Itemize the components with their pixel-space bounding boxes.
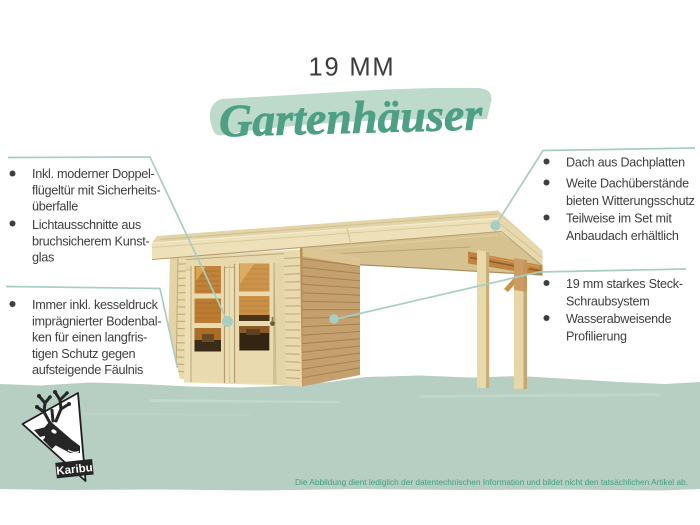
svg-text:aufsteigende Fäulnis: aufsteigende Fäulnis bbox=[32, 363, 143, 377]
svg-text:bieten Witterungsschutz: bieten Witterungsschutz bbox=[566, 194, 695, 208]
svg-text:Immer inkl. kesseldruck: Immer inkl. kesseldruck bbox=[32, 298, 159, 312]
svg-text:bruchsicherem Kunst-: bruchsicherem Kunst- bbox=[32, 234, 149, 248]
svg-text:19 MM: 19 MM bbox=[309, 54, 396, 82]
svg-text:Weite Dachüberstände: Weite Dachüberstände bbox=[566, 177, 689, 191]
svg-text:Gartenhäuser: Gartenhäuser bbox=[218, 89, 484, 147]
svg-text:Die Abbildung dient lediglich: Die Abbildung dient lediglich der datent… bbox=[295, 477, 688, 487]
svg-text:ken für einen langfris-: ken für einen langfris- bbox=[32, 331, 147, 345]
svg-text:19 mm starkes Steck-: 19 mm starkes Steck- bbox=[566, 277, 683, 291]
svg-text:Teilweise im Set mit: Teilweise im Set mit bbox=[566, 212, 672, 226]
svg-text:tigen Schutz gegen: tigen Schutz gegen bbox=[32, 347, 135, 361]
svg-text:Lichtausschnitte aus: Lichtausschnitte aus bbox=[32, 218, 141, 232]
svg-text:Schraubsystem: Schraubsystem bbox=[566, 295, 650, 309]
svg-text:Profilierung: Profilierung bbox=[566, 330, 627, 344]
svg-text:glas: glas bbox=[32, 251, 54, 265]
svg-text:imprägnierter Bodenbal-: imprägnierter Bodenbal- bbox=[32, 314, 161, 328]
svg-text:Wasserabweisende: Wasserabweisende bbox=[566, 312, 672, 326]
svg-text:überfalle: überfalle bbox=[32, 200, 78, 214]
svg-text:Anbaudach erhältlich: Anbaudach erhältlich bbox=[566, 229, 679, 243]
svg-text:flügeltür mit Sicherheits-: flügeltür mit Sicherheits- bbox=[32, 183, 160, 197]
svg-text:Inkl. moderner Doppel-: Inkl. moderner Doppel- bbox=[32, 167, 155, 181]
svg-text:Dach aus Dachplatten: Dach aus Dachplatten bbox=[566, 156, 685, 170]
